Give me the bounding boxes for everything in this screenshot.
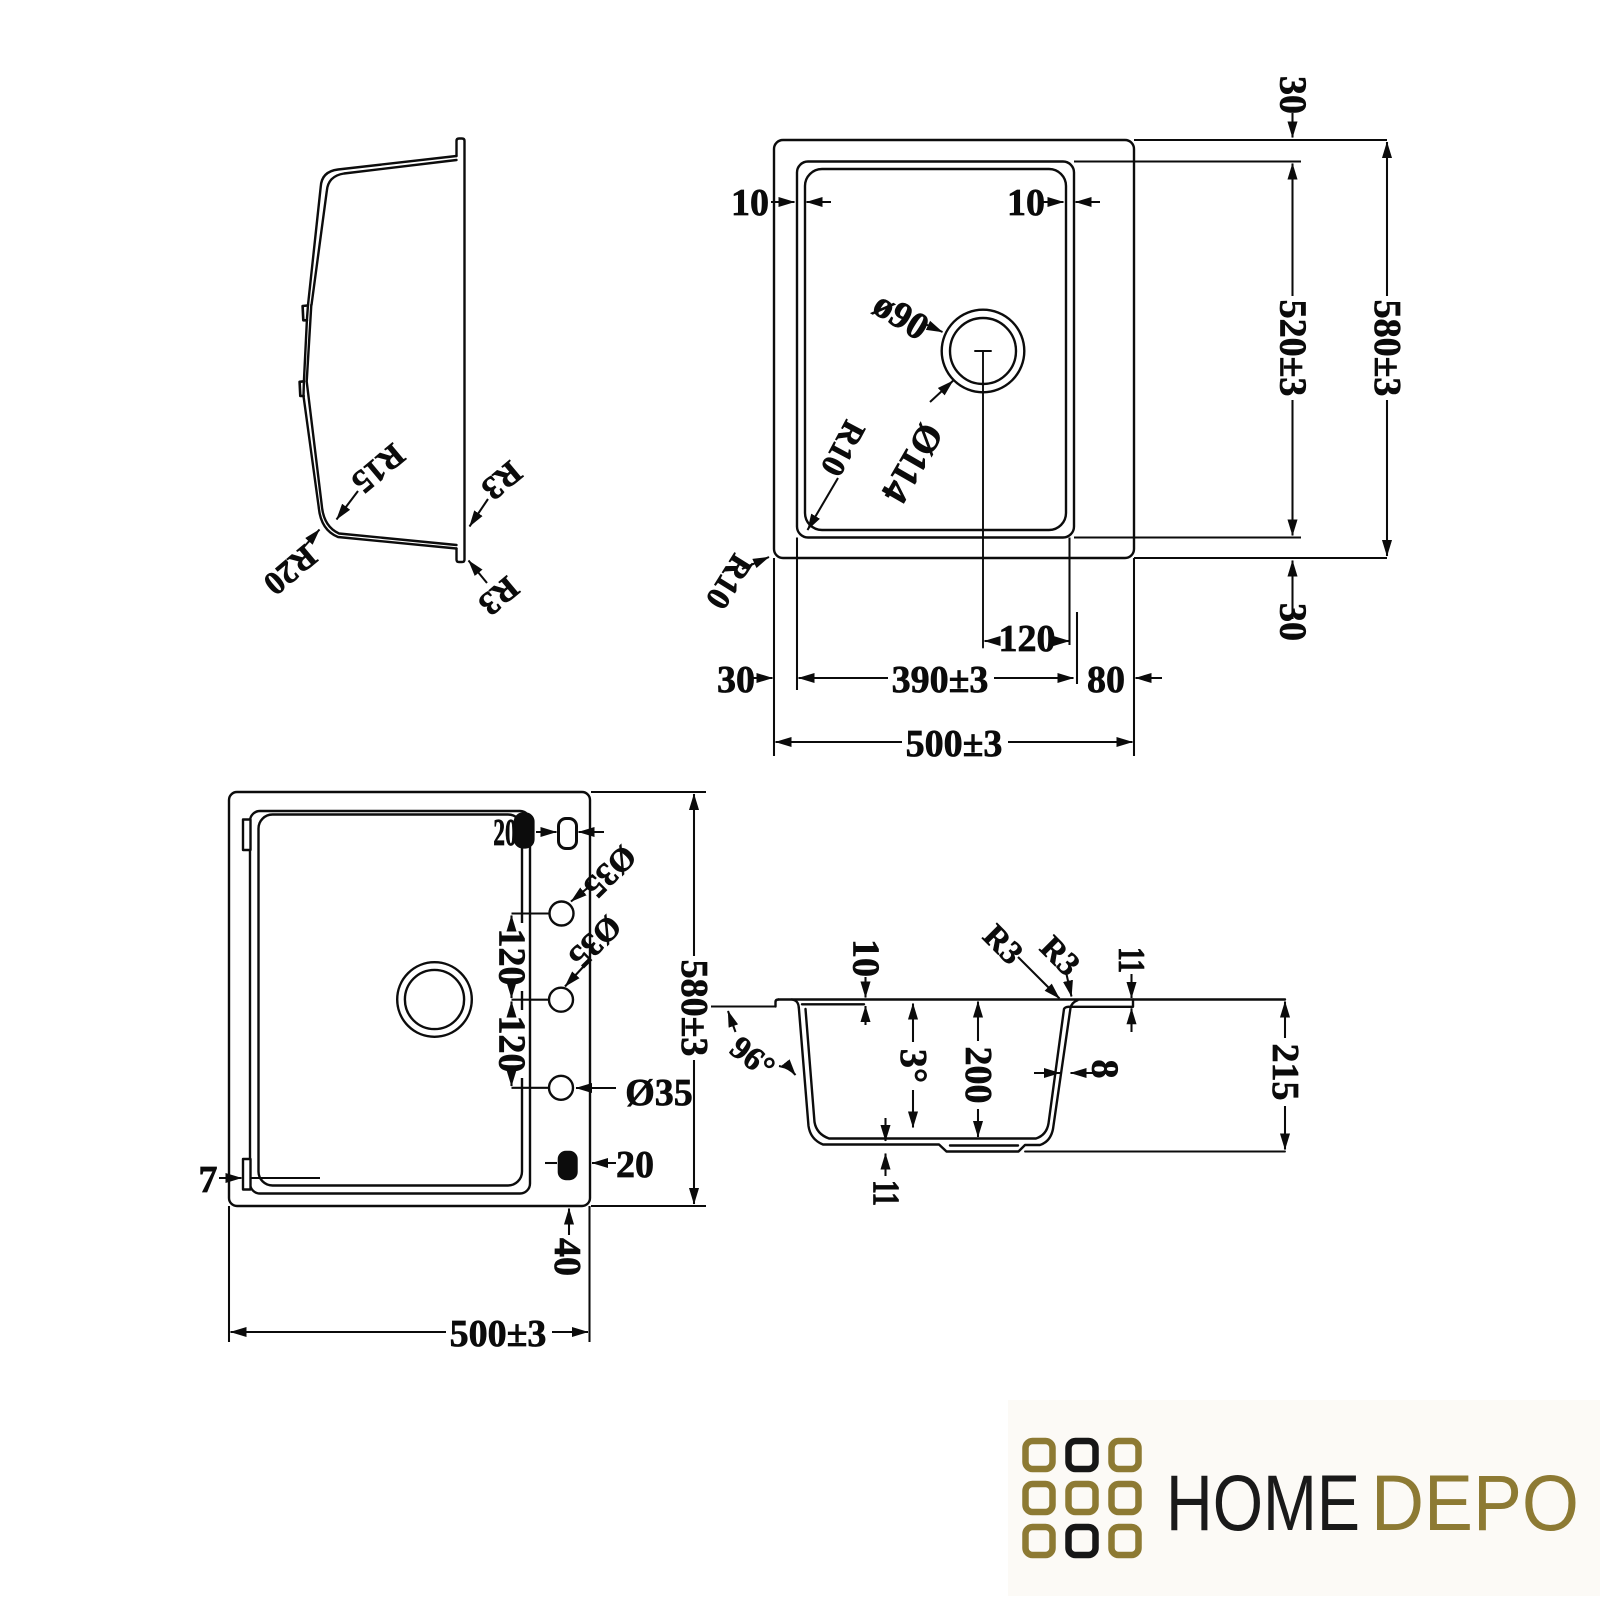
svg-text:7: 7 [199,1159,218,1201]
svg-text:120: 120 [491,1016,533,1073]
svg-text:8: 8 [1084,1060,1126,1079]
svg-text:3°: 3° [892,1049,934,1083]
svg-text:120: 120 [491,929,533,986]
svg-text:Ø35: Ø35 [625,1072,693,1114]
svg-text:HOME: HOME [1166,1458,1360,1547]
svg-text:390±3: 390±3 [892,659,989,701]
svg-text:20: 20 [493,811,517,853]
svg-text:10: 10 [731,182,769,224]
svg-text:215: 215 [1264,1044,1306,1101]
svg-text:80: 80 [1087,659,1125,701]
svg-text:10: 10 [1007,182,1045,224]
svg-text:500±3: 500±3 [906,723,1003,765]
svg-text:580±3: 580±3 [673,960,715,1057]
svg-text:30: 30 [1272,76,1314,114]
svg-text:500±3: 500±3 [450,1313,547,1355]
svg-text:200: 200 [957,1047,999,1104]
svg-text:20: 20 [616,1144,654,1186]
svg-text:120: 120 [999,618,1056,660]
svg-text:40: 40 [546,1238,588,1276]
svg-text:10: 10 [845,939,887,977]
svg-text:520±3: 520±3 [1272,300,1314,397]
svg-text:DEPO: DEPO [1371,1458,1579,1547]
svg-text:580±3: 580±3 [1366,300,1408,397]
svg-text:11: 11 [865,1180,907,1206]
svg-text:11: 11 [1110,947,1152,973]
svg-text:30: 30 [1272,603,1314,641]
svg-text:30: 30 [717,659,755,701]
